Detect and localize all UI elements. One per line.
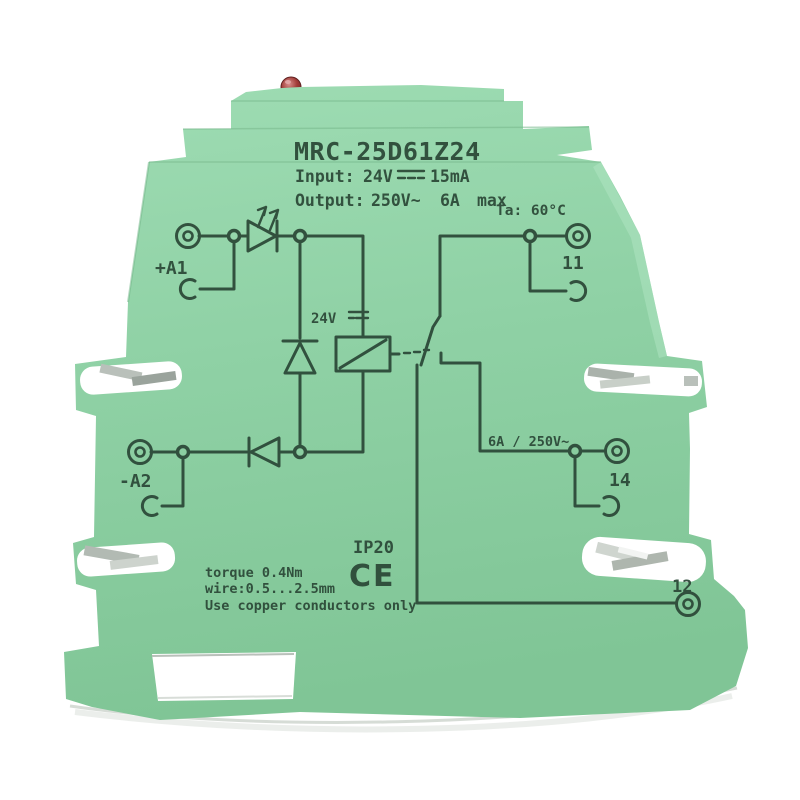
copper-note: Use copper conductors only (205, 598, 416, 614)
terminal-label-a2: -A2 (119, 471, 152, 492)
output-label: Output: (295, 191, 365, 210)
relay-module-svg: MRC-25D61Z24 Input: 24V 15mA Output: 250… (0, 0, 800, 800)
output-current: 6A (440, 191, 460, 210)
torque-note: torque 0.4Nm (205, 565, 303, 581)
terminal-label-11: 11 (562, 253, 584, 274)
terminal-label-14: 14 (609, 470, 631, 491)
ambient-temp: Ta: 60°C (496, 203, 566, 219)
model-number: MRC-25D61Z24 (294, 137, 481, 166)
contact-rating-label: 6A / 250V~ (488, 434, 569, 450)
relay-module-photo: MRC-25D61Z24 Input: 24V 15mA Output: 250… (0, 0, 800, 800)
module-body (64, 85, 748, 720)
output-voltage: 250V~ (371, 191, 421, 210)
coil-voltage-label: 24V (311, 311, 337, 327)
terminal-label-12: 12 (672, 577, 692, 597)
ip-rating: IP20 (353, 538, 394, 558)
ce-mark: CE (349, 559, 396, 594)
input-current: 15mA (430, 167, 470, 186)
din-rail-slot (152, 652, 296, 701)
terminal-label-a1: +A1 (155, 258, 188, 279)
input-label: Input: (295, 167, 355, 186)
wire-range-note: wire:0.5...2.5mm (205, 581, 335, 597)
input-voltage: 24V (363, 167, 393, 186)
